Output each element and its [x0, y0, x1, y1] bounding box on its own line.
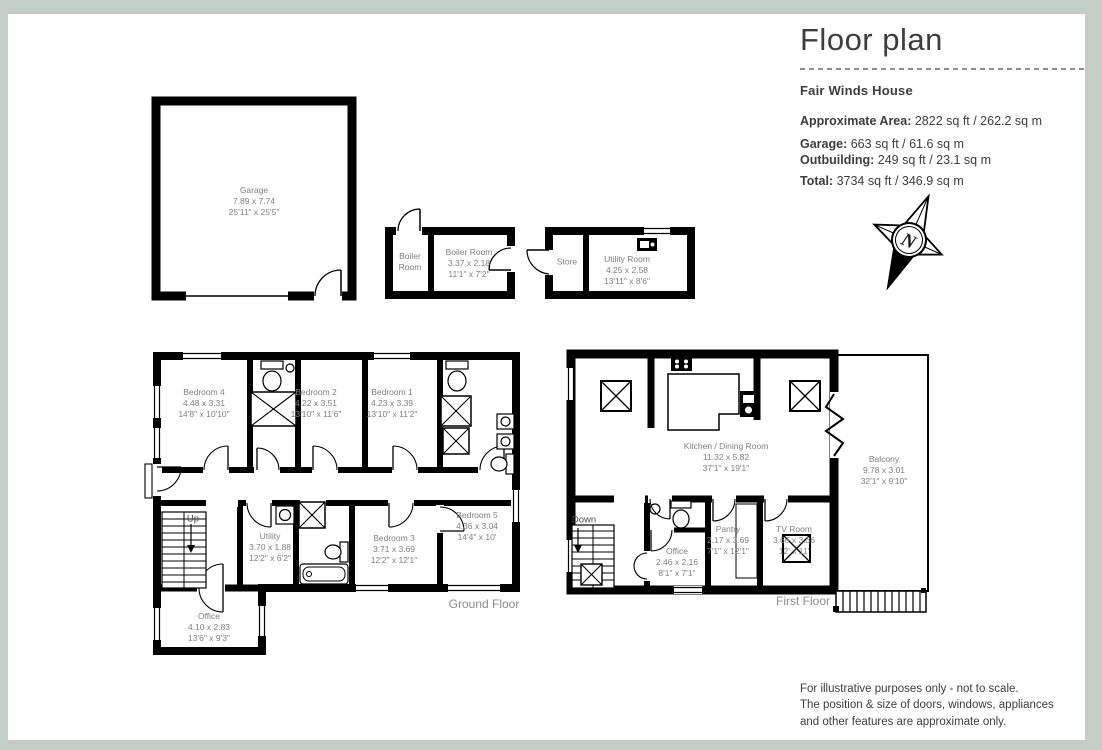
- washing-machine-icon: [276, 506, 294, 524]
- toilet-icon: [261, 361, 283, 391]
- ground-floor-label: Ground Floor: [449, 597, 520, 611]
- area-value: 249 sq ft / 23.1 sq m: [878, 153, 991, 167]
- stairs-up-label: Up: [187, 514, 199, 525]
- stairs-down-label: Down: [572, 515, 596, 526]
- page-title: Floor plan: [800, 22, 943, 58]
- staircase-down-icon: [572, 525, 614, 588]
- room-label-bedroom2: Bedroom 24.22 x 3.5113'10" x 11'6": [291, 387, 342, 421]
- room-label-balcony: Balcony9.78 x 3.0132'1" x 9'10": [861, 454, 908, 488]
- area-row-outbuilding: Outbuilding: 249 sq ft / 23.1 sq m: [800, 153, 991, 167]
- room-label-utility: Utility3.70 x 1.8812'2" x 6'2": [249, 531, 291, 565]
- room-label-utility-room: Utility Room4.25 x 2.5813'11" x 8'6": [604, 254, 650, 288]
- room-label-bedroom4: Bedroom 44.48 x 3.3114'8" x 10'10": [178, 387, 229, 421]
- shower-icon: [299, 502, 325, 528]
- area-value: 663 sq ft / 61.6 sq m: [851, 137, 964, 151]
- room-label-boiler-lobby: Boiler Room: [390, 251, 430, 273]
- disclaimer-text: For illustrative purposes only - not to …: [800, 681, 1054, 730]
- first-floor-label: First Floor: [776, 594, 830, 608]
- toilet-icon: [446, 361, 468, 391]
- area-row-approximate: Approximate Area: 2822 sq ft / 262.2 sq …: [800, 114, 1042, 128]
- room-label-bedroom5: Bedroom 54.36 x 3.0414'4" x 10': [456, 510, 498, 544]
- area-label: Approximate Area:: [800, 114, 911, 128]
- room-label-tv-room: TV Room3.66 x 3.3612' x 11': [773, 524, 815, 558]
- external-stairs-icon: [833, 588, 926, 612]
- floorplan-graphics: N: [0, 0, 1102, 750]
- staircase-up-icon: [162, 512, 206, 588]
- room-label-office-ground: Office4.10 x 2.8313'6" x 9'3": [188, 611, 230, 645]
- room-label-store: Store: [557, 256, 577, 267]
- room-label-pantry: Pantry2.17 x 3.697'1" x 12'1": [707, 524, 749, 558]
- area-label: Total:: [800, 174, 833, 188]
- area-value: 3734 sq ft / 346.9 sq m: [837, 174, 964, 188]
- room-label-garage: Garage7.89 x 7.7425'11" x 25'5": [229, 185, 280, 219]
- area-value: 2822 sq ft / 262.2 sq m: [915, 114, 1042, 128]
- room-label-kitchen-dining: Kitchen / Dining Room11.32 x 5.8237'1" x…: [684, 441, 769, 475]
- toilet-icon: [671, 501, 691, 528]
- property-name: Fair Winds House: [800, 83, 913, 98]
- area-row-total: Total: 3734 sq ft / 346.9 sq m: [800, 174, 964, 188]
- room-label-bedroom3: Bedroom 33.71 x 3.6912'2" x 12'1": [371, 533, 418, 567]
- area-label: Garage:: [800, 137, 847, 151]
- area-label: Outbuilding:: [800, 153, 874, 167]
- room-label-bedroom1: Bedroom 14.23 x 3.3913'10" x 11'2": [367, 387, 418, 421]
- floorplan-page: N Floor plan Fair Winds House Approximat…: [0, 0, 1102, 750]
- sink-appliance-icon: [637, 238, 657, 251]
- area-row-garage: Garage: 663 sq ft / 61.6 sq m: [800, 137, 964, 151]
- compass-north-icon: N: [853, 181, 961, 302]
- room-label-office-first: Office2.46 x 2.168'1" x 7'1": [656, 546, 698, 580]
- window: [644, 226, 670, 236]
- shower-icon: [441, 396, 471, 454]
- oven-icon: [740, 391, 757, 417]
- hob-icon: [671, 357, 692, 371]
- room-label-boiler-room: Boiler Room3.37 x 2.1811'1" x 7'2": [446, 247, 493, 281]
- title-divider: [800, 68, 1087, 70]
- bathtub-icon: [300, 564, 348, 584]
- shower-icon: [251, 392, 296, 426]
